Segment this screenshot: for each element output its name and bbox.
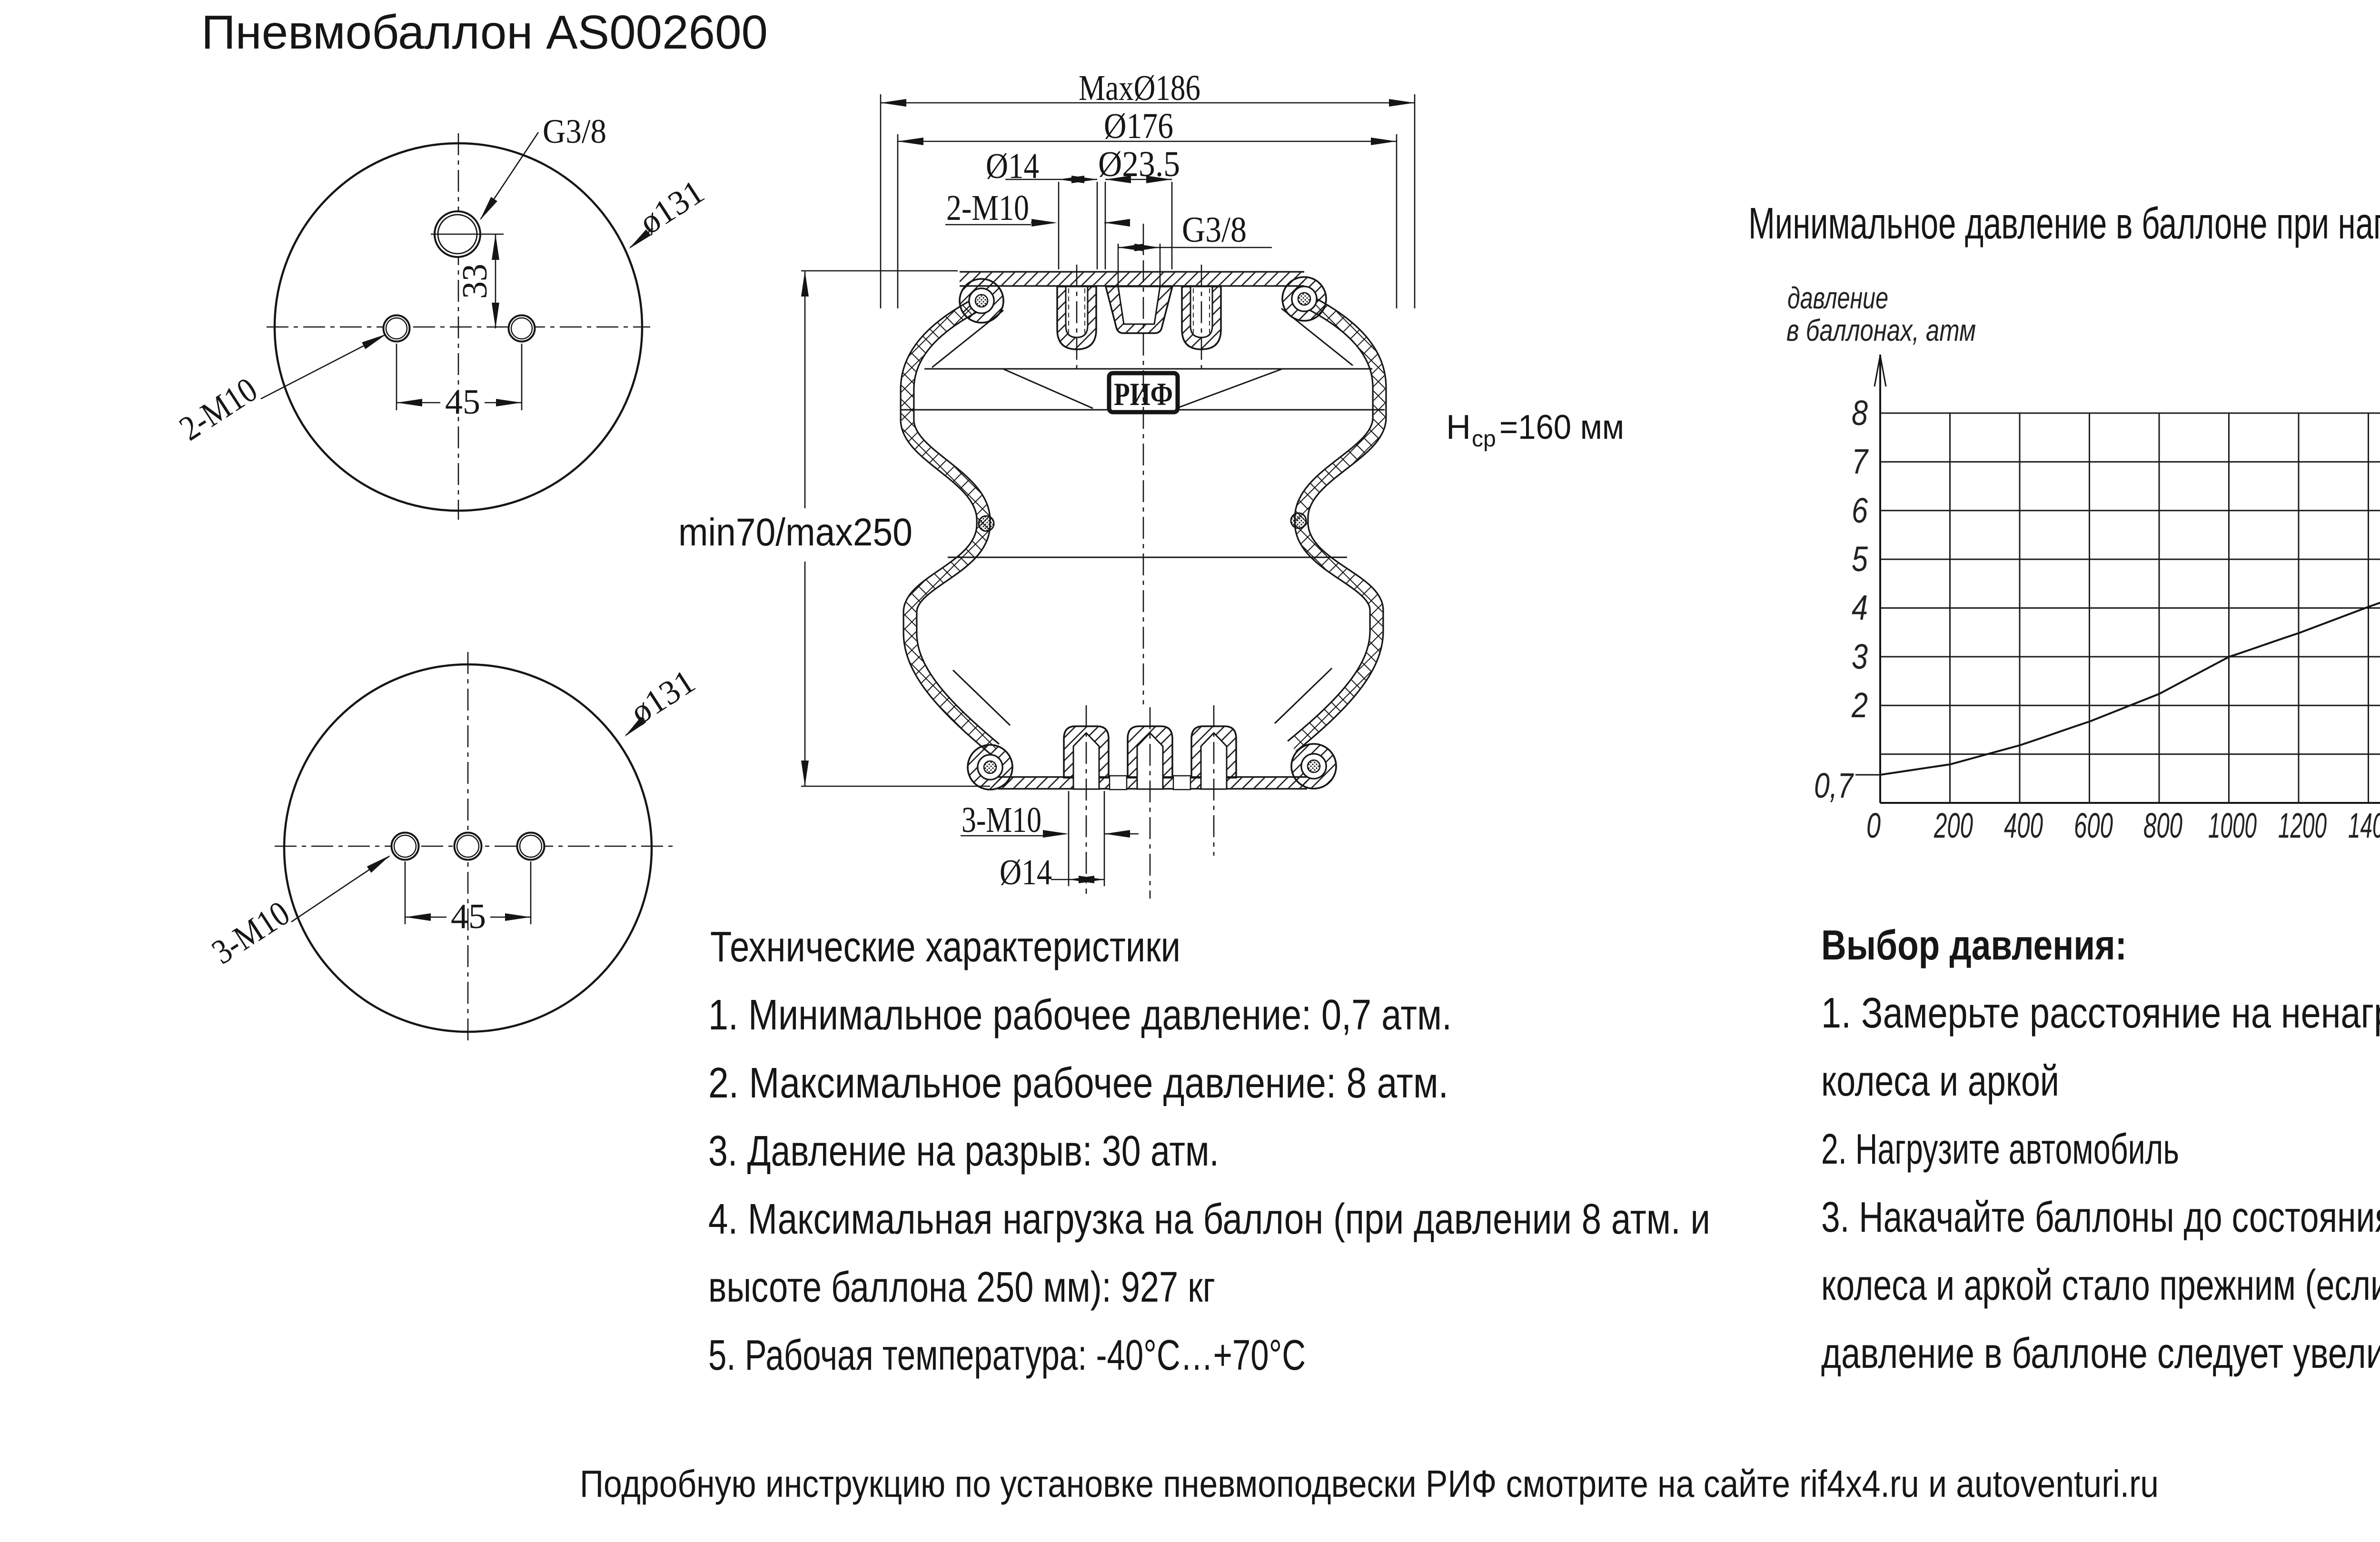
svg-text:45: 45 [451, 897, 486, 936]
svg-text:колеса и аркой стало прежним (: колеса и аркой стало прежним (если Вы хо… [1821, 1262, 2380, 1309]
svg-text:Подробную инструкцию по устано: Подробную инструкцию по установке пневмо… [580, 1463, 2159, 1505]
svg-text:2. Максимальное рабочее давлен: 2. Максимальное рабочее давление: 8 атм. [708, 1059, 1448, 1107]
svg-text:5. Рабочая температура: -40°С…: 5. Рабочая температура: -40°С…+70°С [708, 1332, 1306, 1379]
svg-text:2. Нагрузите автомобиль: 2. Нагрузите автомобиль [1821, 1126, 2179, 1173]
svg-text:1000: 1000 [2208, 806, 2257, 845]
svg-text:Минимальное давление в баллоне: Минимальное давление в баллоне при нагру… [1748, 198, 2380, 248]
svg-text:высоте баллона 250 мм): 927 кг: высоте баллона 250 мм): 927 кг [708, 1264, 1215, 1311]
svg-text:в баллонах, атм: в баллонах, атм [1786, 313, 1976, 347]
svg-text:3-М10: 3-М10 [962, 800, 1041, 840]
svg-text:4: 4 [1852, 588, 1868, 627]
svg-text:G3/8: G3/8 [543, 112, 606, 150]
svg-text:4. Максимальная нагрузка на ба: 4. Максимальная нагрузка на баллон (при … [708, 1196, 1710, 1243]
svg-text:G3/8: G3/8 [1182, 210, 1247, 250]
svg-text:2: 2 [1851, 685, 1868, 725]
svg-text:колеса и аркой: колеса и аркой [1821, 1058, 2059, 1105]
svg-text:1. Замерьте расстояние на нена: 1. Замерьте расстояние на ненагруженном … [1821, 989, 2380, 1037]
svg-text:33: 33 [456, 264, 495, 299]
svg-text:0,7: 0,7 [1814, 766, 1854, 805]
svg-text:7: 7 [1852, 442, 1869, 481]
svg-text:3. Давление на разрыв: 30 атм.: 3. Давление на разрыв: 30 атм. [708, 1127, 1219, 1175]
svg-text:давление в баллоне следует уве: давление в баллоне следует увеличить) [1821, 1330, 2380, 1377]
svg-text:Технические характеристики: Технические характеристики [710, 923, 1180, 971]
svg-text:Выбор давления:: Выбор давления: [1821, 921, 2127, 969]
svg-text:Ø14: Ø14 [1000, 852, 1052, 892]
svg-text:Ø14: Ø14 [986, 146, 1039, 186]
svg-text:8: 8 [1852, 393, 1868, 433]
svg-text:Ø23.5: Ø23.5 [1098, 144, 1180, 184]
svg-text:600: 600 [2074, 806, 2113, 845]
svg-text:0: 0 [1866, 806, 1881, 845]
svg-text:Н: Н [1446, 408, 1471, 446]
svg-text:MaxØ186: MaxØ186 [1079, 68, 1200, 108]
svg-text:3. Накачайте баллоны до состоя: 3. Накачайте баллоны до состояния, чтобы… [1821, 1194, 2380, 1241]
svg-text:1200: 1200 [2278, 806, 2327, 845]
svg-text:400: 400 [2004, 806, 2043, 845]
svg-text:3: 3 [1852, 637, 1868, 676]
svg-text:6: 6 [1852, 491, 1868, 530]
svg-text:Ø176: Ø176 [1104, 106, 1173, 146]
svg-text:2-М10: 2-М10 [946, 188, 1029, 228]
svg-text:800: 800 [2143, 806, 2182, 845]
svg-text:45: 45 [445, 383, 480, 422]
svg-text:5: 5 [1852, 539, 1868, 579]
svg-text:min70/max250: min70/max250 [678, 511, 912, 554]
svg-text:1. Минимальное рабочее давлени: 1. Минимальное рабочее давление: 0,7 атм… [708, 991, 1452, 1039]
svg-text:200: 200 [1934, 806, 1973, 845]
svg-text:=160 мм: =160 мм [1499, 408, 1624, 446]
svg-text:давление: давление [1787, 281, 1888, 315]
svg-text:Пневмобаллон AS002600: Пневмобаллон AS002600 [201, 6, 768, 59]
svg-text:ср: ср [1472, 426, 1496, 452]
svg-text:1400: 1400 [2348, 806, 2380, 845]
